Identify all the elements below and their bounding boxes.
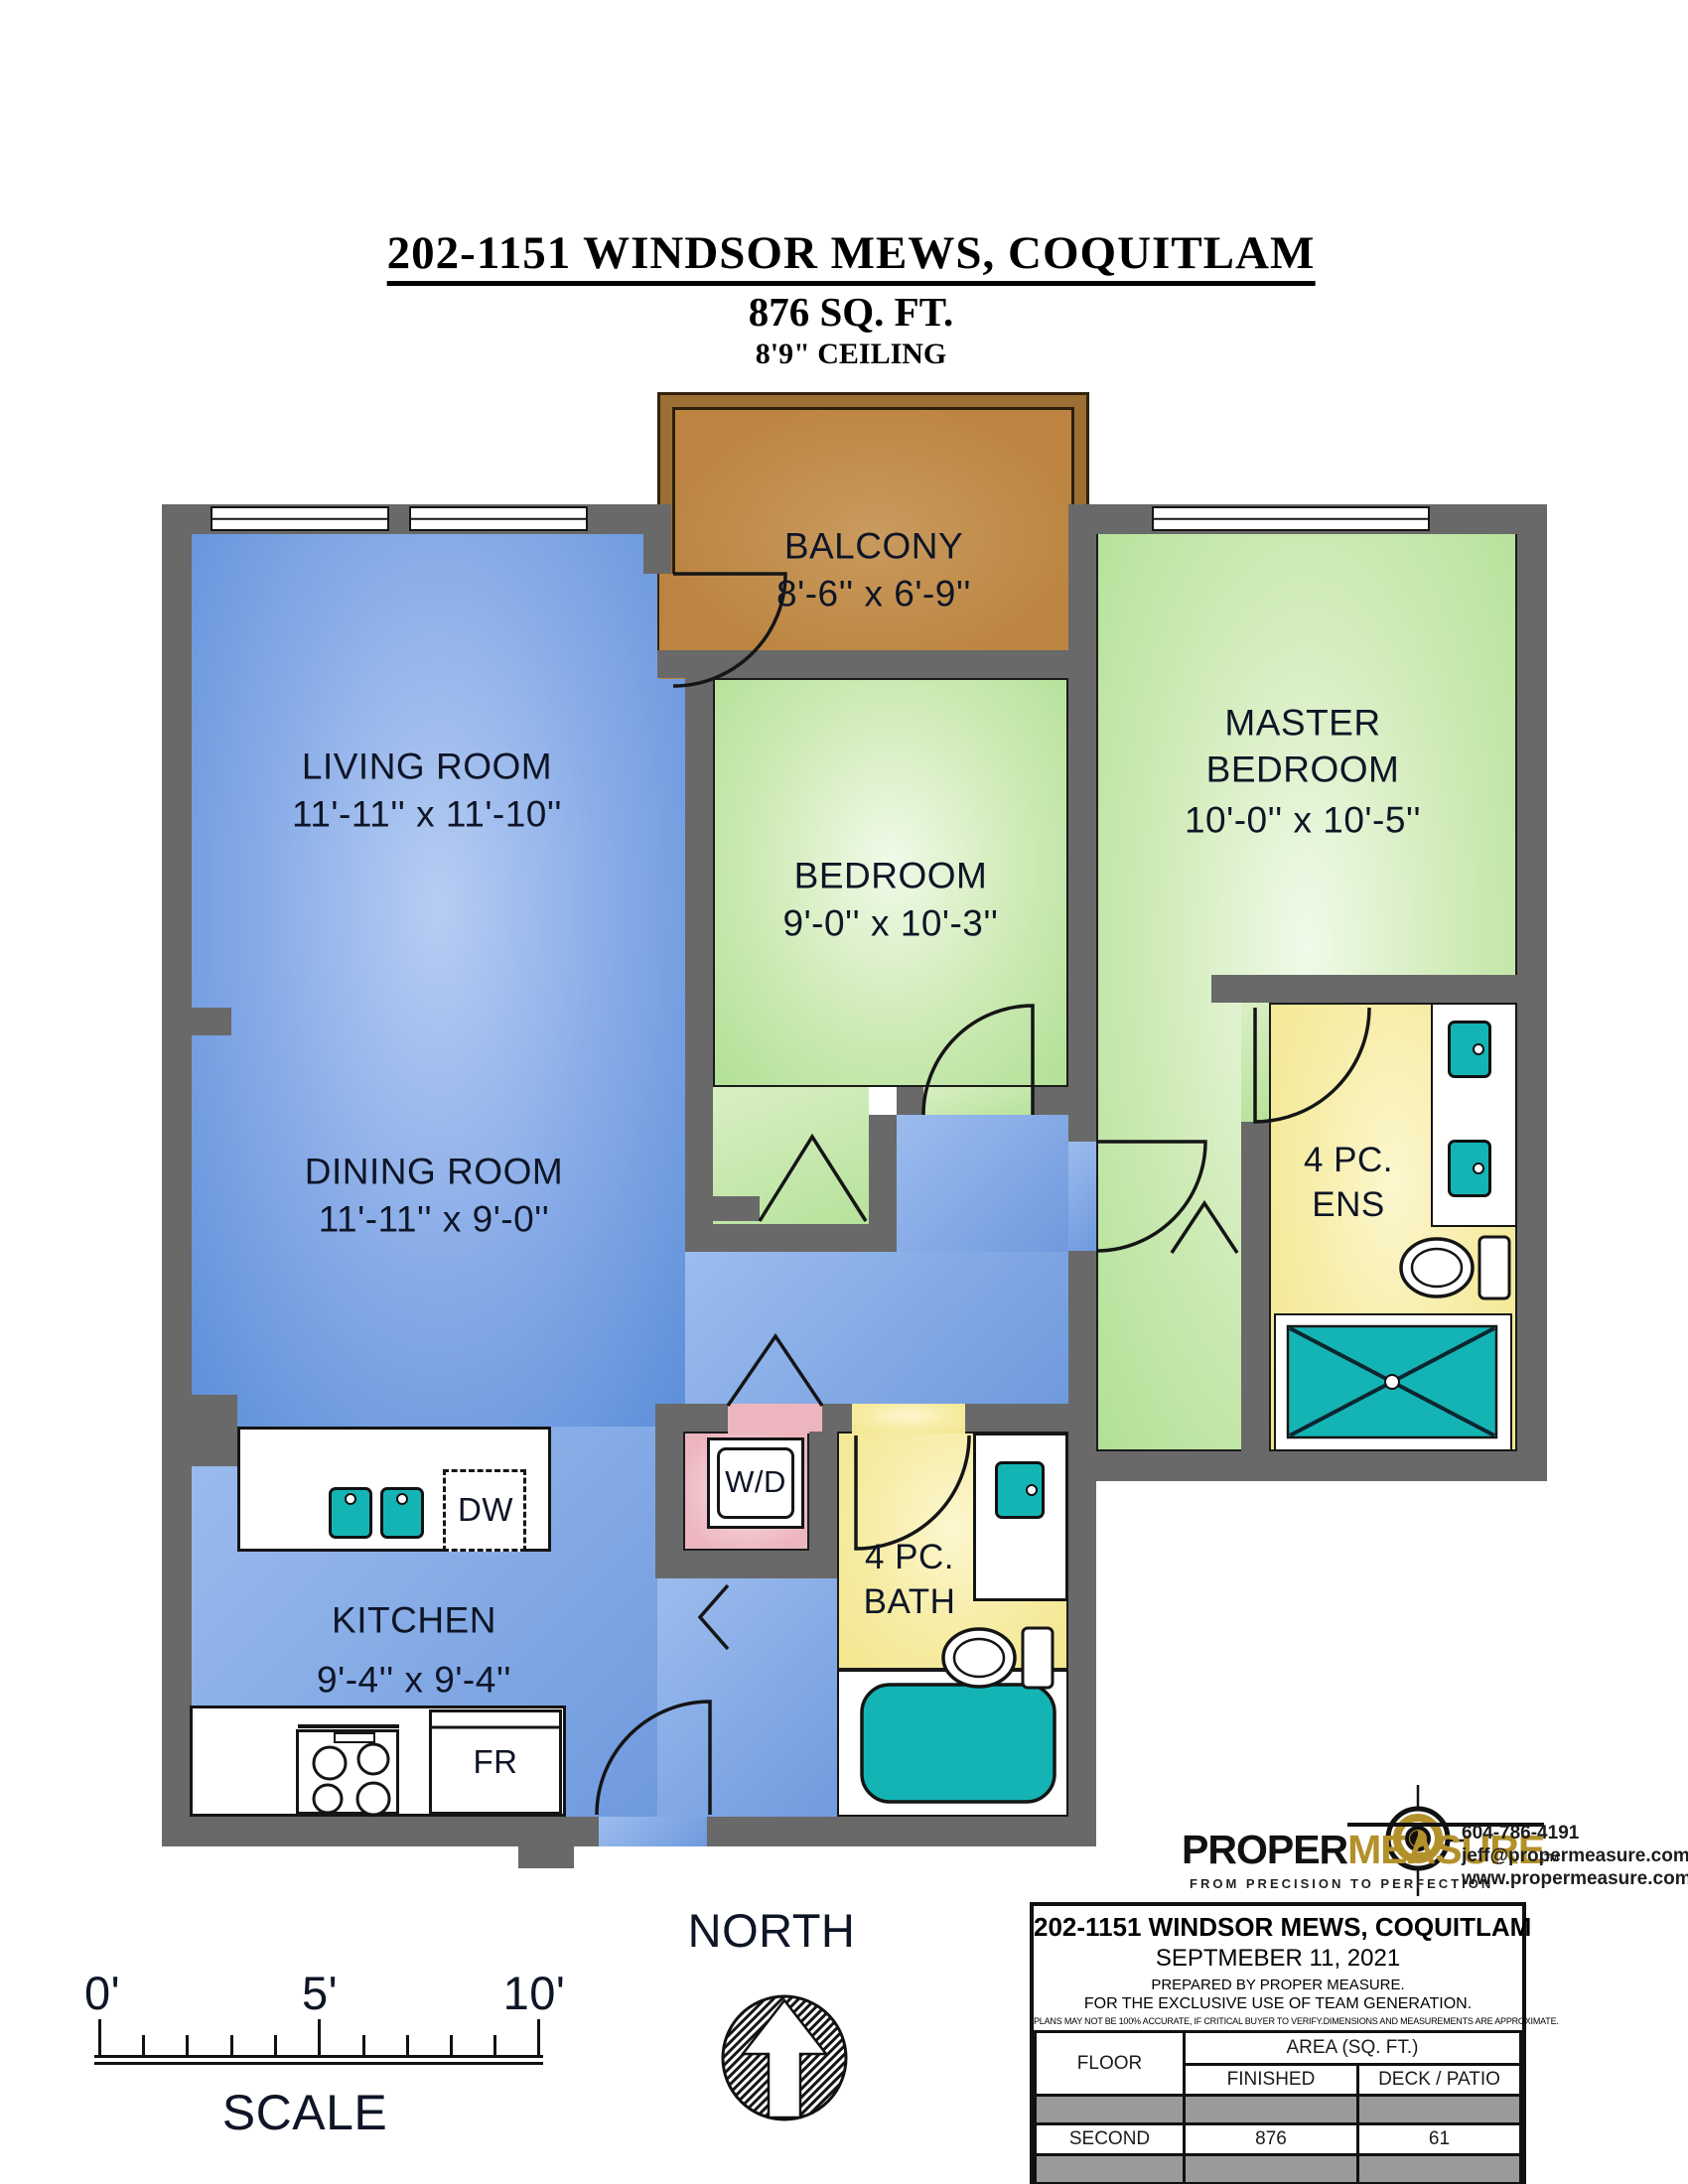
ensuite-door-gap xyxy=(1241,1003,1269,1122)
ensuite-label: 4 PC. ENS xyxy=(1274,1139,1423,1228)
page-title: 202-1151 WINDSOR MEWS, COQUITLAM xyxy=(387,226,1316,286)
kitchen-sink-right xyxy=(380,1487,424,1539)
bath-tub-surround xyxy=(837,1670,1068,1817)
title-block-address: 202-1151 WINDSOR MEWS, COQUITLAM xyxy=(1034,1912,1522,1943)
wall xyxy=(713,1196,760,1221)
wall xyxy=(822,1404,837,1432)
floor-value-cell: SECOND xyxy=(1036,2124,1185,2155)
empty-cell xyxy=(1036,2096,1185,2124)
table-row: SECOND 876 61 xyxy=(1036,2124,1521,2155)
wall xyxy=(869,1115,897,1224)
table-row xyxy=(1036,2155,1521,2184)
washer-dryer-label: W/D xyxy=(725,1462,786,1502)
wall xyxy=(685,1224,897,1252)
room-hallway-upper xyxy=(897,1115,1068,1252)
scale-tick-10: 10' xyxy=(503,1964,566,2023)
scale-caption: SCALE xyxy=(222,2081,387,2144)
wall xyxy=(162,504,192,1846)
scale-minor-tick xyxy=(493,2035,496,2057)
scale-minor-tick xyxy=(406,2035,409,2057)
bath-label: 4 PC. BATH xyxy=(825,1536,994,1625)
ceiling-subtitle: 8'9" CEILING xyxy=(756,338,947,371)
table-row xyxy=(1036,2096,1521,2124)
logo-text-black: PROPER xyxy=(1182,1827,1347,1872)
shower-surround xyxy=(1274,1313,1512,1451)
area-subtitle: 876 SQ. FT. xyxy=(749,288,954,336)
wall xyxy=(518,1846,574,1868)
floor-header-cell: FLOOR xyxy=(1036,2032,1185,2096)
wall xyxy=(657,650,1096,678)
deck-value-cell: 61 xyxy=(1358,2124,1521,2155)
dining-room-label: DINING ROOM xyxy=(305,1148,563,1194)
living-room-label: LIVING ROOM xyxy=(302,743,552,789)
finished-header-cell: FINISHED xyxy=(1185,2065,1358,2096)
area-header-cell: AREA (SQ. FT.) xyxy=(1185,2032,1521,2065)
wall xyxy=(190,1008,231,1035)
ensuite-sink-bottom xyxy=(1448,1140,1491,1197)
wall xyxy=(685,678,713,1224)
window xyxy=(409,506,588,531)
wall xyxy=(837,1404,852,1432)
wall xyxy=(655,1551,837,1578)
logo-tagline: FROM PRECISION TO PERFECTION xyxy=(1190,1876,1493,1891)
bath-door-gap xyxy=(852,1404,965,1433)
stove xyxy=(296,1729,399,1815)
wall xyxy=(1241,1122,1269,1451)
wall xyxy=(162,1817,599,1846)
ensuite-sink-top xyxy=(1448,1021,1491,1078)
north-label: NORTH xyxy=(688,1901,856,1961)
wall xyxy=(190,1395,237,1466)
wall xyxy=(897,1087,923,1115)
bedroom-dims: 9'-0'' x 10'-3'' xyxy=(783,899,999,946)
empty-cell xyxy=(1358,2096,1521,2124)
title-block-date: SEPTMEBER 11, 2021 xyxy=(1034,1945,1522,1973)
wall xyxy=(965,1404,1068,1432)
master-bedroom-label: MASTER BEDROOM xyxy=(1139,700,1467,794)
bath-sink xyxy=(995,1461,1045,1519)
kitchen-sink-left xyxy=(329,1487,372,1539)
kitchen-dims: 9'-4'' x 9'-4'' xyxy=(317,1656,511,1703)
fridge-label: FR xyxy=(474,1741,518,1783)
north-compass-icon xyxy=(719,1992,850,2123)
wall xyxy=(1068,1251,1096,1846)
wall xyxy=(655,1404,728,1432)
master-door-gap xyxy=(1068,1142,1096,1251)
empty-cell xyxy=(1358,2155,1521,2184)
scale-major-tick xyxy=(318,2019,321,2057)
scale-minor-tick xyxy=(230,2035,233,2057)
wd-door-gap xyxy=(728,1404,822,1433)
room-entry-floor xyxy=(657,1578,847,1817)
window xyxy=(1152,506,1430,531)
logo-phone: 604-786-4191 xyxy=(1462,1823,1579,1844)
title-block-exclusive: FOR THE EXCLUSIVE USE OF TEAM GENERATION… xyxy=(1034,1995,1522,2013)
master-bedroom-dims: 10'-0'' x 10'-5'' xyxy=(1185,796,1421,843)
scale-minor-tick xyxy=(362,2035,365,2057)
empty-cell xyxy=(1185,2155,1358,2184)
scale-minor-tick xyxy=(274,2035,277,2057)
empty-cell xyxy=(1036,2155,1185,2184)
bedroom-door-gap xyxy=(923,1087,1033,1115)
logo-website[interactable]: www.propermeasure.com xyxy=(1462,1868,1688,1890)
floor-plan-page: 202-1151 WINDSOR MEWS, COQUITLAM 876 SQ.… xyxy=(0,0,1688,2184)
wall xyxy=(1033,1087,1068,1115)
room-hallway xyxy=(685,1252,1068,1404)
title-block: 202-1151 WINDSOR MEWS, COQUITLAM SEPTMEB… xyxy=(1030,1902,1526,2184)
wall xyxy=(1068,532,1096,1142)
wall xyxy=(707,1817,1095,1846)
logo-email[interactable]: jeff@propermeasure.com xyxy=(1462,1845,1688,1867)
empty-cell xyxy=(1185,2096,1358,2124)
finished-value-cell: 876 xyxy=(1185,2124,1358,2155)
room-living-dining xyxy=(190,532,685,1427)
scale-minor-tick xyxy=(142,2035,145,2057)
wall xyxy=(643,504,671,574)
balcony-label: BALCONY xyxy=(784,522,963,569)
scale-major-tick xyxy=(98,2019,101,2057)
living-room-dims: 11'-11'' x 11'-10'' xyxy=(292,790,562,837)
scale-minor-tick xyxy=(450,2035,453,2057)
scale-tick-5: 5' xyxy=(302,1964,338,2023)
dining-room-dims: 11'-11'' x 9'-0'' xyxy=(319,1195,550,1242)
entry-door-gap xyxy=(599,1817,707,1846)
deck-header-cell: DECK / PATIO xyxy=(1358,2065,1521,2096)
scale-tick-0: 0' xyxy=(84,1964,120,2023)
kitchen-label: KITCHEN xyxy=(332,1596,496,1643)
wall xyxy=(1096,1451,1545,1481)
scale-major-tick xyxy=(537,2019,540,2057)
area-table: FLOOR AREA (SQ. FT.) FINISHED DECK / PAT… xyxy=(1034,2030,1522,2184)
balcony-dims: 8'-6'' x 6'-9'' xyxy=(776,570,971,616)
title-block-disclaimer: PLANS MAY NOT BE 100% ACCURATE, IF CRITI… xyxy=(1034,2016,1522,2026)
bedroom-label: BEDROOM xyxy=(794,852,988,898)
wall xyxy=(1211,975,1545,1003)
dishwasher-label: DW xyxy=(458,1489,513,1531)
title-block-prepared: PREPARED BY PROPER MEASURE. xyxy=(1034,1977,1522,1993)
scale-minor-tick xyxy=(186,2035,189,2057)
window xyxy=(211,506,389,531)
